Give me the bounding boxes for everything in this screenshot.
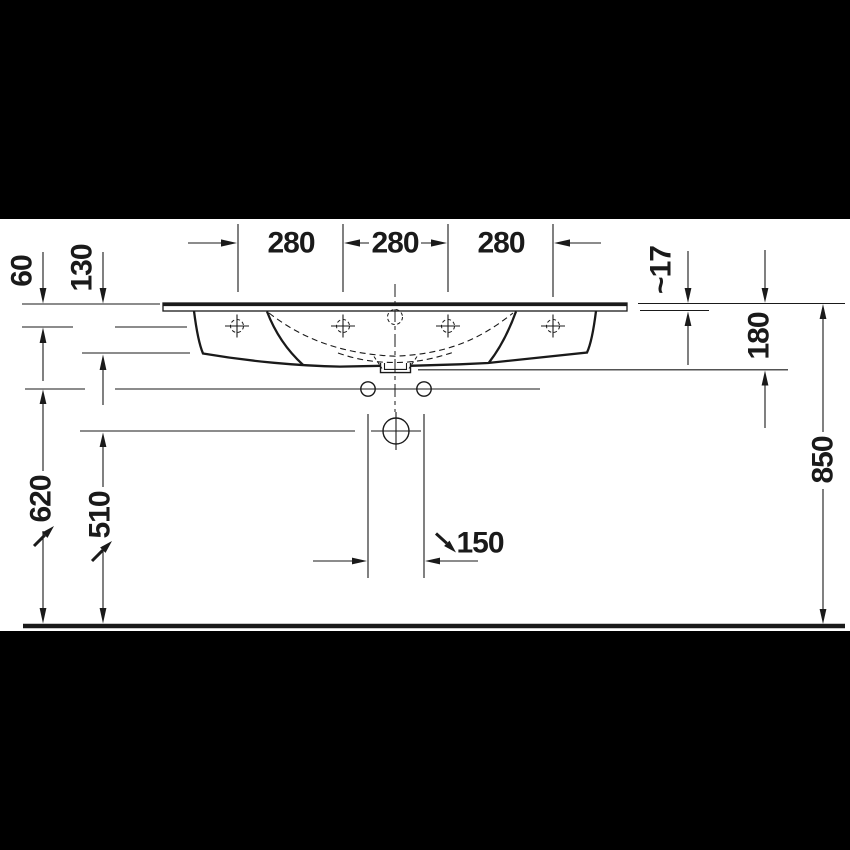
dim-label-150: 150: [456, 527, 503, 560]
arrowhead-up: [40, 390, 47, 405]
arrowhead-down: [100, 608, 107, 624]
arrowhead-up: [100, 355, 107, 371]
arrowhead-up: [40, 328, 47, 344]
dim-130: 130: [66, 244, 107, 405]
arrowhead-right: [431, 239, 447, 246]
dim-label-180: 180: [743, 312, 776, 359]
arrowhead-down: [100, 288, 107, 304]
dim-label-130: 130: [66, 244, 99, 291]
left-extension-lines: [22, 304, 540, 431]
arrowhead-down: [40, 608, 47, 624]
arrowhead-down: [40, 288, 47, 304]
arrowhead-up: [820, 304, 827, 319]
bowl-front-edge-right: [489, 312, 516, 363]
arrowhead-right: [352, 558, 367, 565]
top-black-band: [0, 0, 850, 219]
wall-holes: [361, 382, 431, 450]
technical-drawing-canvas: 280 280 280 60 130 620 510: [0, 0, 850, 850]
screenshot-stage: 280 280 280 60 130 620 510: [0, 0, 850, 850]
dim-top-280-chain: 280 280 280: [188, 227, 601, 260]
bowl-hidden-rim-curve: [269, 313, 513, 356]
arrowhead-up: [685, 312, 692, 327]
dim-label-280-3: 280: [477, 227, 524, 260]
arrowhead-up: [762, 371, 769, 386]
reference-arrow-shaft: [436, 534, 447, 544]
right-extension-lines: [418, 304, 845, 370]
dim-label-280-1: 280: [267, 227, 314, 260]
arrowhead-down: [685, 288, 692, 303]
dim-label-510: 510: [84, 491, 117, 538]
arrowhead-left: [554, 239, 570, 246]
dim-label-60: 60: [6, 255, 39, 287]
arrowhead-down: [762, 288, 769, 303]
dim-60: 60: [6, 252, 47, 381]
dim-label-850: 850: [807, 436, 840, 483]
arrowhead-up: [100, 433, 107, 448]
bottom-black-band: [0, 631, 850, 850]
dim-510: 510: [84, 433, 117, 624]
dim-850: 850: [807, 304, 840, 624]
dim-label-620: 620: [25, 475, 58, 522]
dim-620: 620: [25, 390, 58, 624]
bowl-hidden-bottom-curve: [338, 352, 454, 363]
dim-label-17: ~17: [645, 246, 678, 294]
arrowhead-down: [820, 609, 827, 624]
dim-17: ~17: [645, 246, 692, 365]
dim-180: 180: [743, 250, 776, 428]
dim-150: 150: [313, 527, 504, 565]
arrowhead-right: [221, 239, 237, 246]
dim-label-280-2: 280: [371, 227, 418, 260]
arrowhead-left: [425, 558, 440, 565]
reference-arrow-shaft: [92, 550, 103, 561]
bowl-front-edge-left: [267, 312, 303, 365]
arrowhead-left: [344, 239, 360, 246]
waste-outlet-crosshair: [371, 412, 421, 450]
washbasin: [163, 284, 627, 450]
